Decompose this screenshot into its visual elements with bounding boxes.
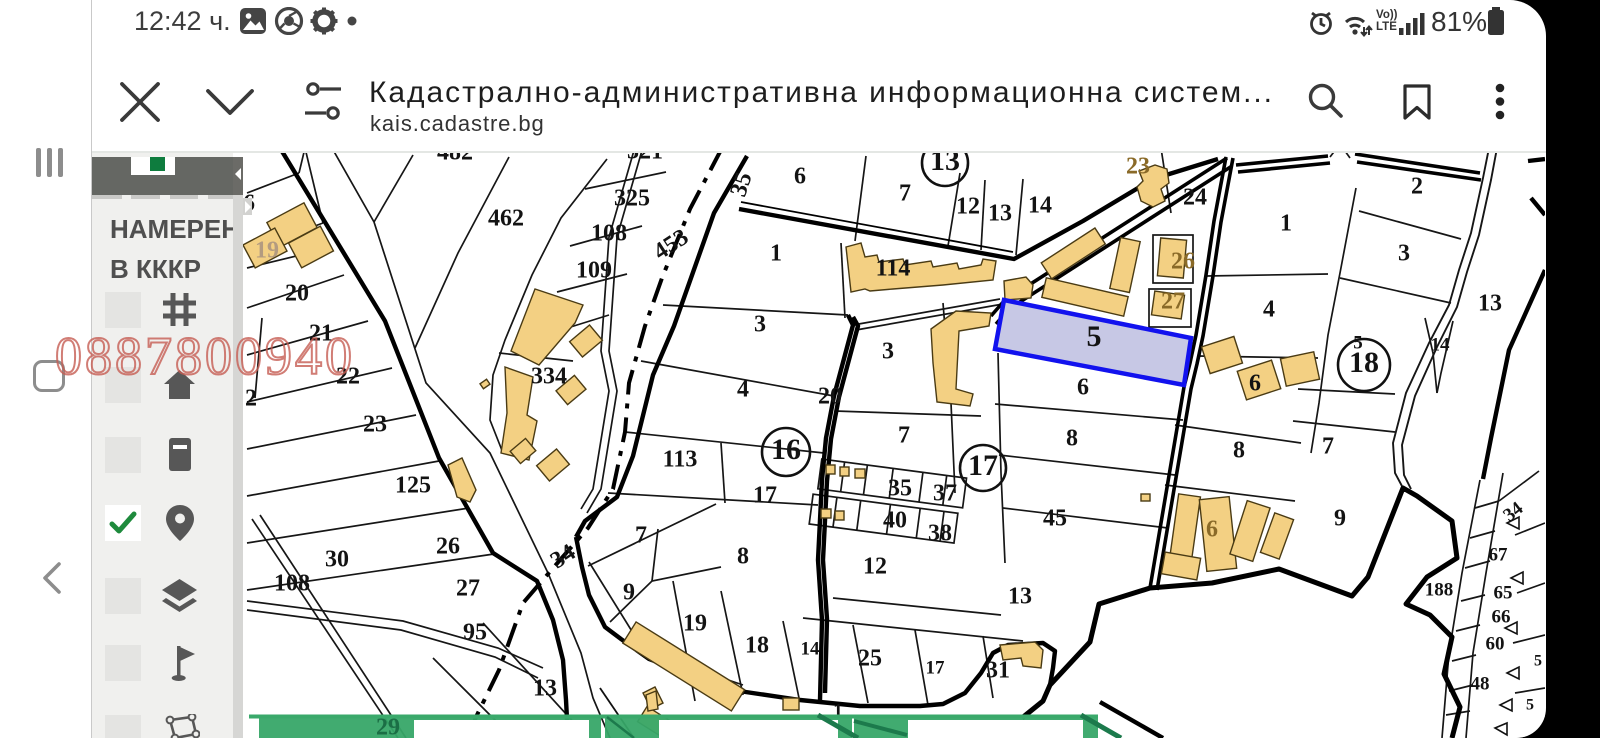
svg-text:7: 7 xyxy=(899,181,911,207)
svg-text:19: 19 xyxy=(255,238,279,264)
svg-text:453: 453 xyxy=(649,224,693,265)
svg-text:23: 23 xyxy=(1126,154,1150,180)
svg-text:23: 23 xyxy=(363,412,387,438)
svg-text:60: 60 xyxy=(1486,633,1505,654)
svg-text:34: 34 xyxy=(546,539,580,574)
svg-text:5: 5 xyxy=(1353,332,1363,353)
svg-text:20: 20 xyxy=(818,384,842,410)
svg-text:13: 13 xyxy=(930,153,960,177)
svg-text:12: 12 xyxy=(863,554,887,580)
svg-text:30: 30 xyxy=(325,547,349,573)
svg-text:321: 321 xyxy=(627,153,663,165)
svg-text:1: 1 xyxy=(1280,211,1292,237)
svg-text:6: 6 xyxy=(1077,375,1089,401)
svg-text:17: 17 xyxy=(968,449,998,482)
svg-text:8: 8 xyxy=(737,544,749,570)
svg-text:482: 482 xyxy=(437,153,473,166)
svg-text:113: 113 xyxy=(663,447,698,473)
svg-text:4: 4 xyxy=(737,377,749,403)
svg-text:13: 13 xyxy=(988,201,1012,227)
svg-text:7: 7 xyxy=(635,523,647,549)
svg-text:16: 16 xyxy=(771,433,801,466)
svg-text:114: 114 xyxy=(876,256,911,282)
svg-text:109: 109 xyxy=(576,258,612,284)
svg-text:66: 66 xyxy=(1492,606,1511,627)
svg-text:18: 18 xyxy=(745,633,769,659)
svg-text:17: 17 xyxy=(926,657,946,678)
svg-text:3: 3 xyxy=(1398,241,1410,267)
svg-text:9: 9 xyxy=(623,580,635,606)
svg-text:188: 188 xyxy=(1425,579,1454,600)
svg-text:1: 1 xyxy=(770,241,782,267)
svg-text:26: 26 xyxy=(1171,249,1195,275)
svg-text:12: 12 xyxy=(956,194,980,220)
svg-text:27: 27 xyxy=(456,576,480,602)
svg-text:65: 65 xyxy=(1494,582,1513,603)
svg-text:5: 5 xyxy=(1087,320,1102,353)
svg-text:40: 40 xyxy=(883,508,907,534)
svg-text:35: 35 xyxy=(726,169,758,200)
svg-text:14: 14 xyxy=(801,638,821,659)
svg-text:3: 3 xyxy=(882,339,894,365)
svg-text:125: 125 xyxy=(395,473,431,499)
svg-text:6: 6 xyxy=(794,164,806,190)
svg-text:13: 13 xyxy=(1008,584,1032,610)
svg-text:7: 7 xyxy=(1322,434,1334,460)
svg-text:13: 13 xyxy=(533,676,557,702)
svg-text:2: 2 xyxy=(245,386,257,412)
svg-text:7: 7 xyxy=(898,423,910,449)
svg-text:38: 38 xyxy=(928,521,952,547)
svg-text:108: 108 xyxy=(274,571,310,597)
svg-text:24: 24 xyxy=(1183,185,1207,211)
svg-text:27: 27 xyxy=(1161,289,1185,315)
svg-text:8: 8 xyxy=(1066,426,1078,452)
svg-text:9: 9 xyxy=(1334,506,1346,532)
svg-text:31: 31 xyxy=(986,658,1010,684)
svg-text:45: 45 xyxy=(1043,506,1067,532)
svg-text:37: 37 xyxy=(933,481,957,507)
svg-text:325: 325 xyxy=(614,186,650,212)
svg-text:26: 26 xyxy=(436,534,460,560)
svg-text:17: 17 xyxy=(753,483,777,509)
svg-text:6: 6 xyxy=(1249,371,1261,397)
svg-text:334: 334 xyxy=(531,364,567,390)
svg-text:3: 3 xyxy=(754,312,766,338)
svg-text:29: 29 xyxy=(376,715,400,738)
svg-text:2: 2 xyxy=(1411,174,1423,200)
svg-text:5: 5 xyxy=(1526,697,1534,714)
svg-text:4: 4 xyxy=(1263,297,1275,323)
svg-text:19: 19 xyxy=(683,611,707,637)
svg-text:48: 48 xyxy=(1471,673,1490,694)
svg-text:14: 14 xyxy=(1431,334,1451,355)
svg-text:5: 5 xyxy=(1534,653,1542,670)
svg-text:14: 14 xyxy=(1028,193,1052,219)
svg-text:67: 67 xyxy=(1489,544,1509,565)
svg-text:108: 108 xyxy=(591,221,627,247)
svg-text:20: 20 xyxy=(285,281,309,307)
svg-text:462: 462 xyxy=(488,206,524,232)
svg-text:6: 6 xyxy=(1206,517,1218,543)
svg-text:95: 95 xyxy=(463,620,487,646)
svg-text:35: 35 xyxy=(888,476,912,502)
svg-text:25: 25 xyxy=(858,646,882,672)
svg-text:34: 34 xyxy=(1499,498,1527,527)
svg-text:13: 13 xyxy=(1478,291,1502,317)
svg-text:8: 8 xyxy=(1233,438,1245,464)
